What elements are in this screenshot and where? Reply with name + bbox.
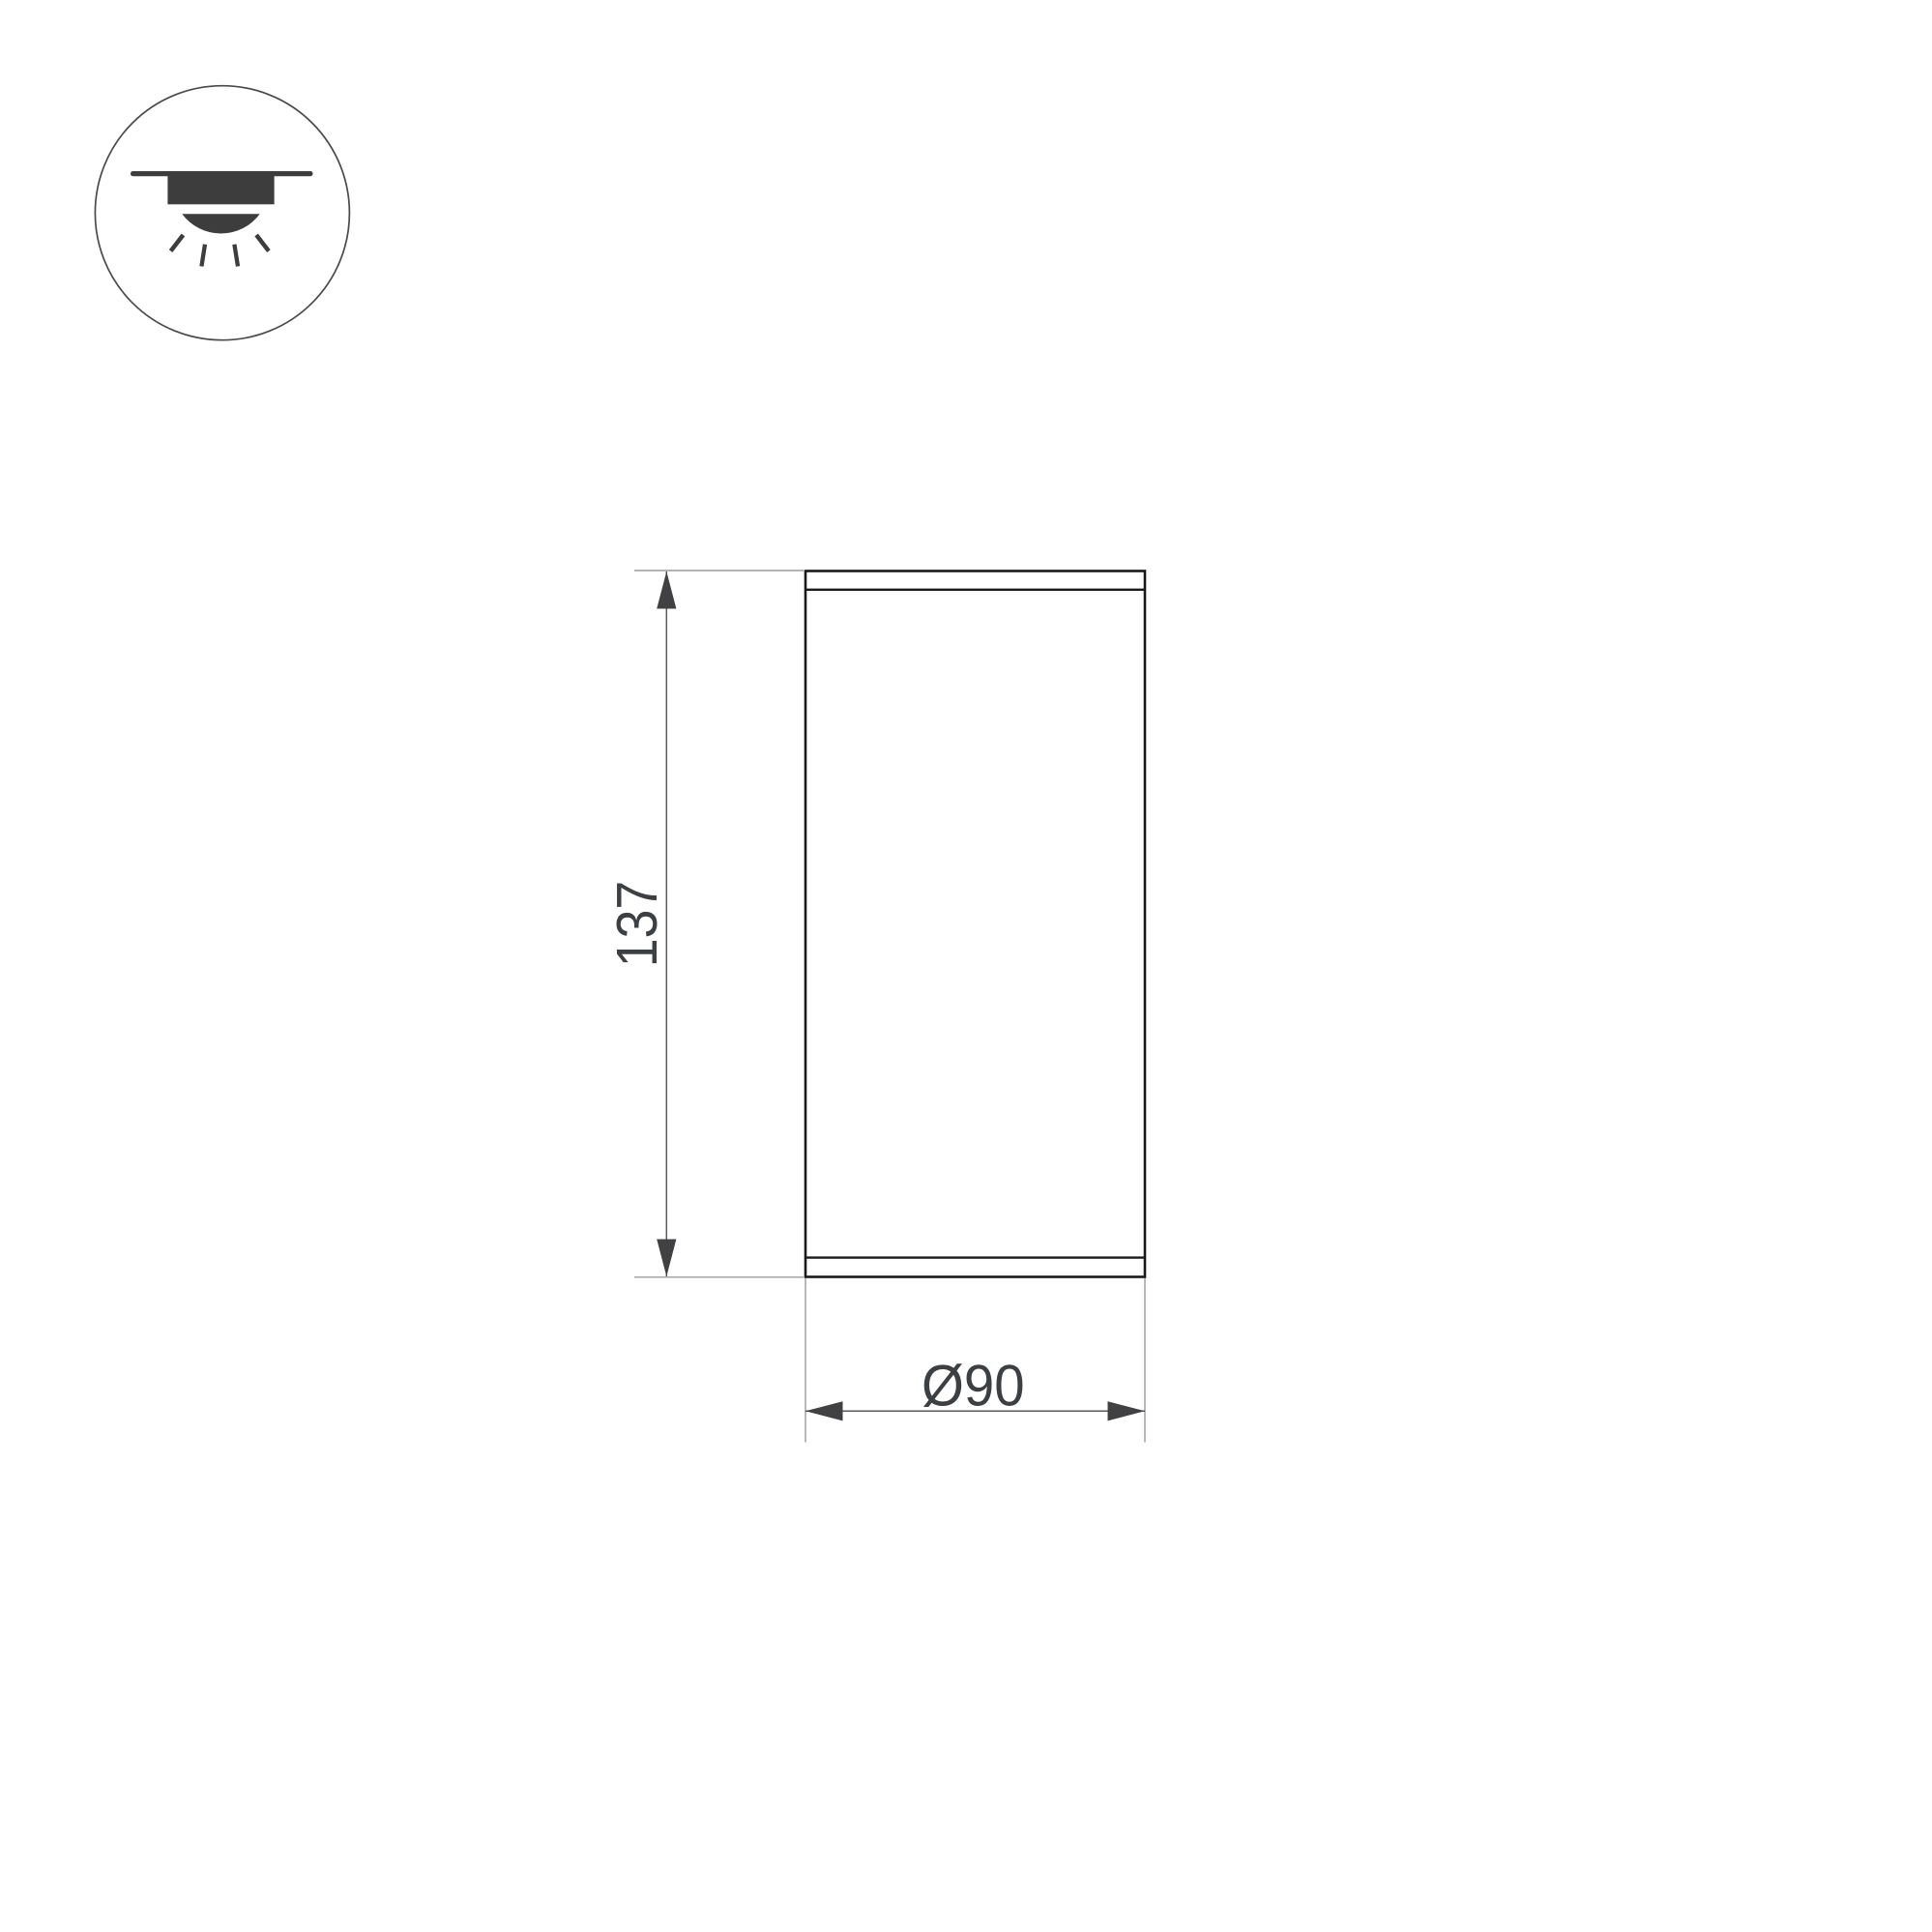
svg-text:137: 137 bbox=[605, 881, 669, 968]
svg-text:Ø90: Ø90 bbox=[922, 1354, 1025, 1419]
